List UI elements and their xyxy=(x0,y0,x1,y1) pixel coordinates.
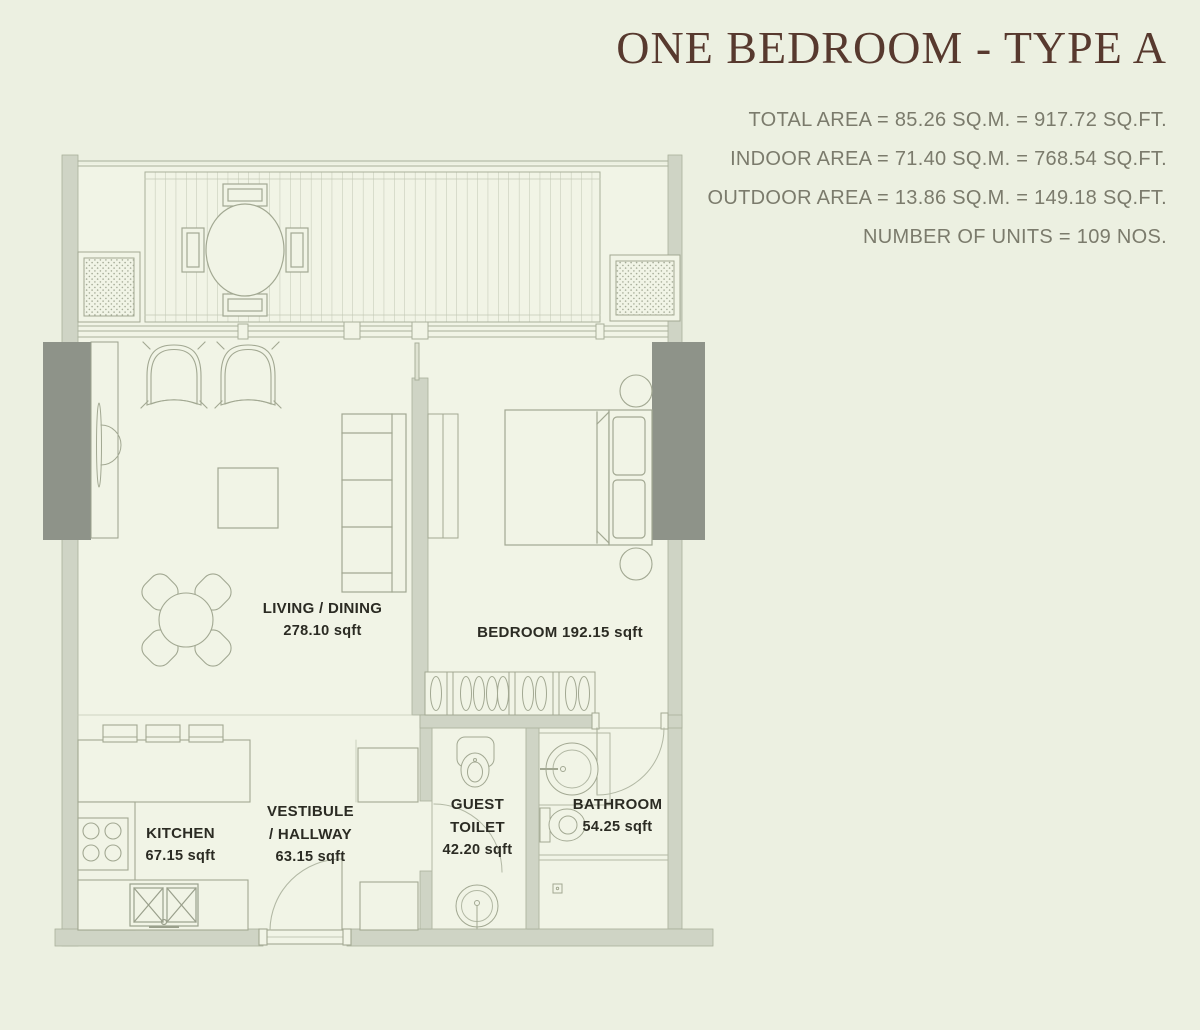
wall-block-right xyxy=(652,342,705,540)
room-area: 42.20 sqft xyxy=(425,839,530,862)
room-name: BATHROOM xyxy=(545,793,690,816)
bar-stool xyxy=(189,725,223,742)
area-statistics: TOTAL AREA = 85.26 SQ.M. = 917.72 SQ.FT.… xyxy=(708,101,1167,257)
tv-console-icon xyxy=(91,342,121,538)
stat-total-area: TOTAL AREA = 85.26 SQ.M. = 917.72 SQ.FT. xyxy=(708,101,1167,140)
room-area: 278.10 sqft xyxy=(235,620,410,643)
room-area: 54.25 sqft xyxy=(545,816,690,839)
page-title: ONE BEDROOM - TYPE A xyxy=(616,24,1167,72)
planter-left-icon xyxy=(78,252,140,322)
room-name: KITCHEN xyxy=(118,822,243,845)
coffee-table-icon xyxy=(218,468,278,528)
dining-table xyxy=(159,593,213,647)
sofa-icon xyxy=(342,414,406,592)
room-area: 63.15 sqft xyxy=(248,846,373,869)
wall-partition-living-bedroom xyxy=(412,378,428,715)
wall-bottom-right xyxy=(347,929,713,946)
room-label-kitchen: KITCHEN 67.15 sqft xyxy=(118,822,243,868)
wall-bottom-left xyxy=(55,929,263,946)
wall-toilet-left-lower xyxy=(420,871,432,929)
closet-icon xyxy=(425,672,595,715)
window-mullion xyxy=(412,322,428,339)
room-label-living-dining: LIVING / DINING 278.10 sqft xyxy=(235,597,410,643)
room-label-bedroom: BEDROOM 192.15 sqft xyxy=(450,621,670,644)
window-mullion xyxy=(596,324,604,339)
room-name: GUEST xyxy=(425,793,530,816)
bar-stool xyxy=(146,725,180,742)
room-label-guest-toilet: GUEST TOILET 42.20 sqft xyxy=(425,793,530,862)
room-name: LIVING / DINING xyxy=(235,597,410,620)
wall-block-left xyxy=(43,342,91,540)
planter-right-icon xyxy=(610,255,680,321)
kitchen-sink-icon xyxy=(130,884,198,927)
sliding-door-leaf xyxy=(415,343,419,380)
wardrobe-icon xyxy=(428,414,458,538)
wall-left xyxy=(62,155,78,946)
room-label-bathroom: BATHROOM 54.25 sqft xyxy=(545,793,690,839)
bed-icon xyxy=(505,410,652,545)
window-mullion xyxy=(238,324,248,339)
stat-indoor-area: INDOOR AREA = 71.40 SQ.M. = 768.54 SQ.FT… xyxy=(708,140,1167,179)
room-name: BEDROOM 192.15 sqft xyxy=(450,621,670,644)
room-name: TOILET xyxy=(425,816,530,839)
room-name: VESTIBULE xyxy=(248,800,373,823)
floor-plan-sheet: ONE BEDROOM - TYPE A TOTAL AREA = 85.26 … xyxy=(0,0,1200,1030)
room-area: 67.15 sqft xyxy=(118,845,243,868)
counter-slab xyxy=(78,740,250,802)
room-label-vestibule-hallway: VESTIBULE / HALLWAY 63.15 sqft xyxy=(248,800,373,869)
stat-number-of-units: NUMBER OF UNITS = 109 NOS. xyxy=(708,218,1167,257)
stat-outdoor-area: OUTDOOR AREA = 13.86 SQ.M. = 149.18 SQ.F… xyxy=(708,179,1167,218)
room-name: / HALLWAY xyxy=(248,823,373,846)
balcony-round-table xyxy=(206,204,284,296)
window-mullion xyxy=(344,322,360,339)
bar-stool xyxy=(103,725,137,742)
wall-bottomrow-top-left xyxy=(420,715,595,728)
